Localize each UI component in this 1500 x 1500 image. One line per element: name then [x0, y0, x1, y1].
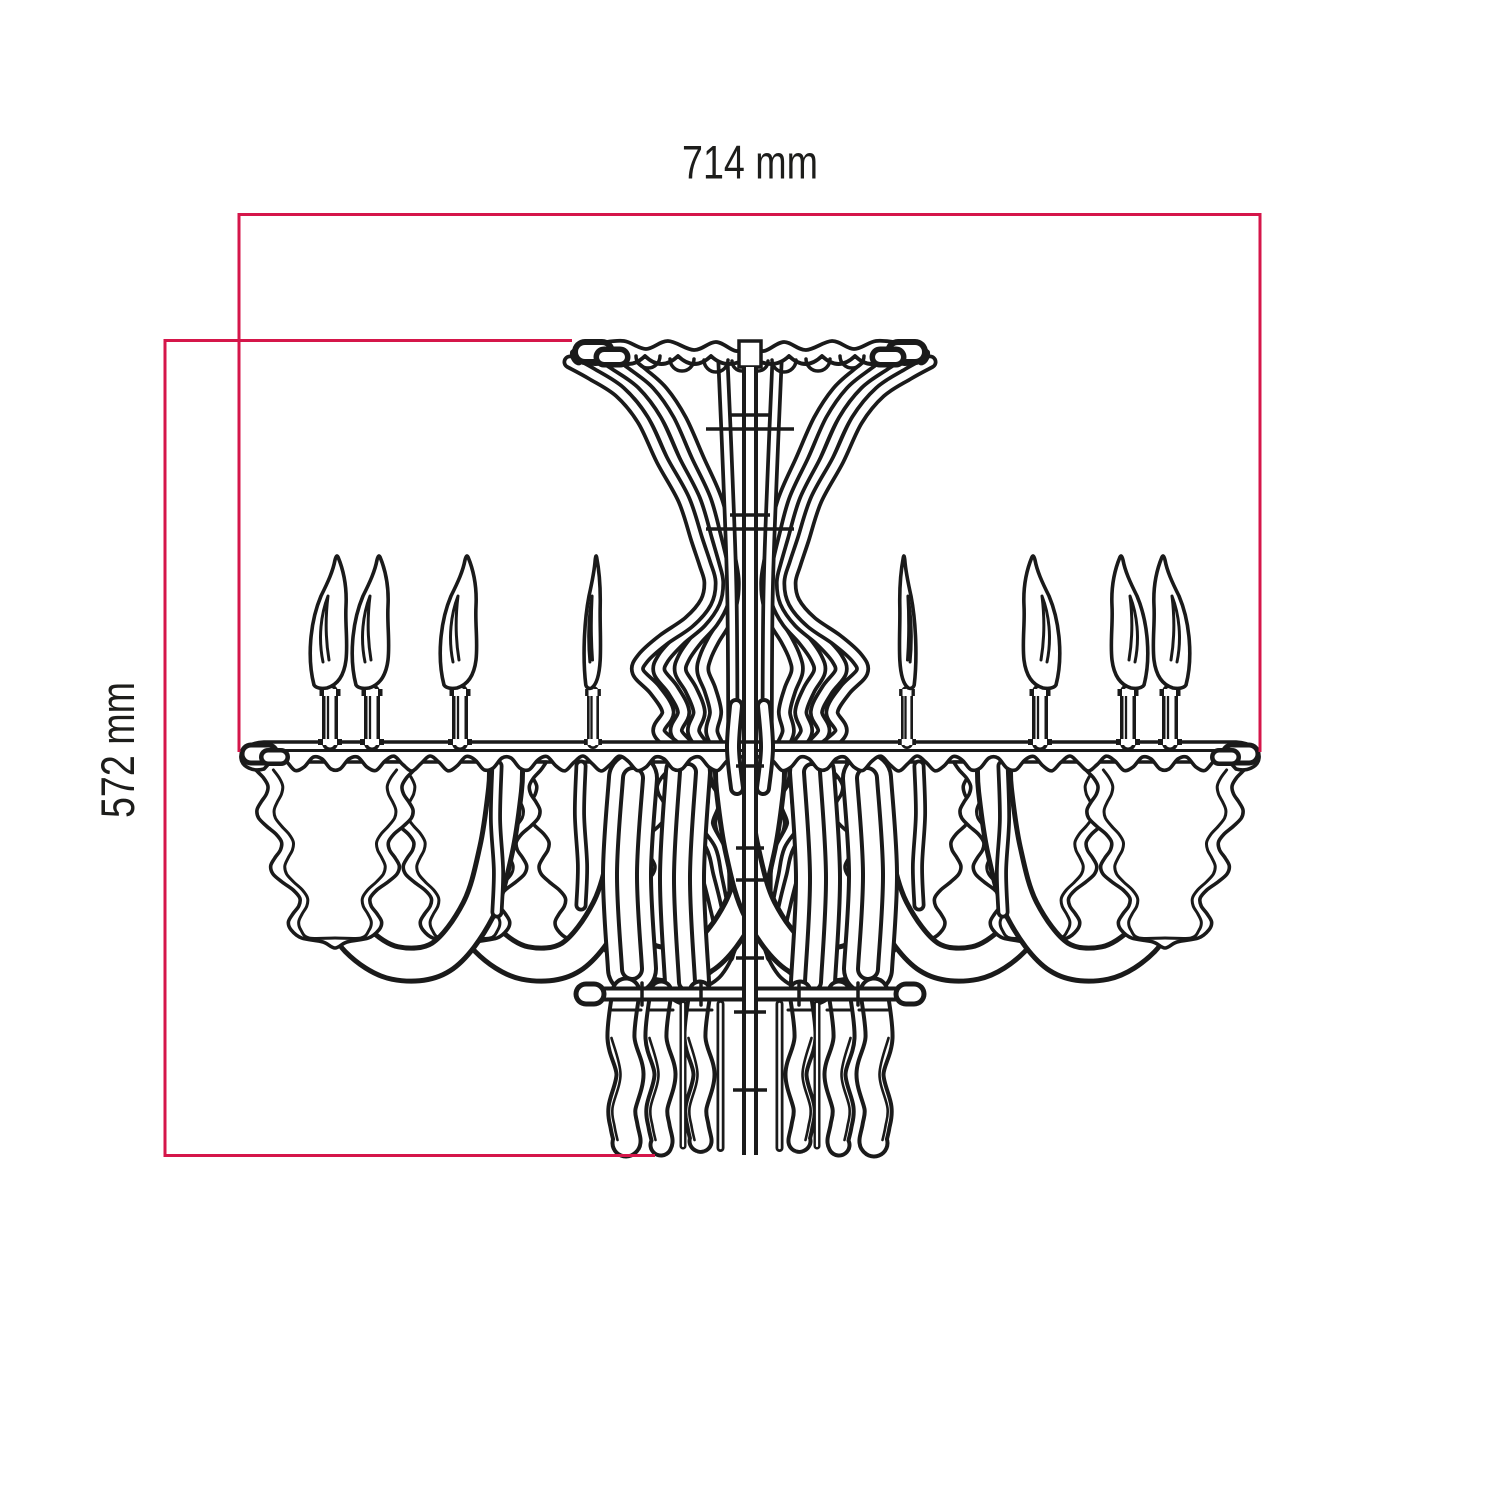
svg-text:714 mm: 714 mm [682, 137, 818, 190]
svg-text:572 mm: 572 mm [92, 682, 145, 818]
